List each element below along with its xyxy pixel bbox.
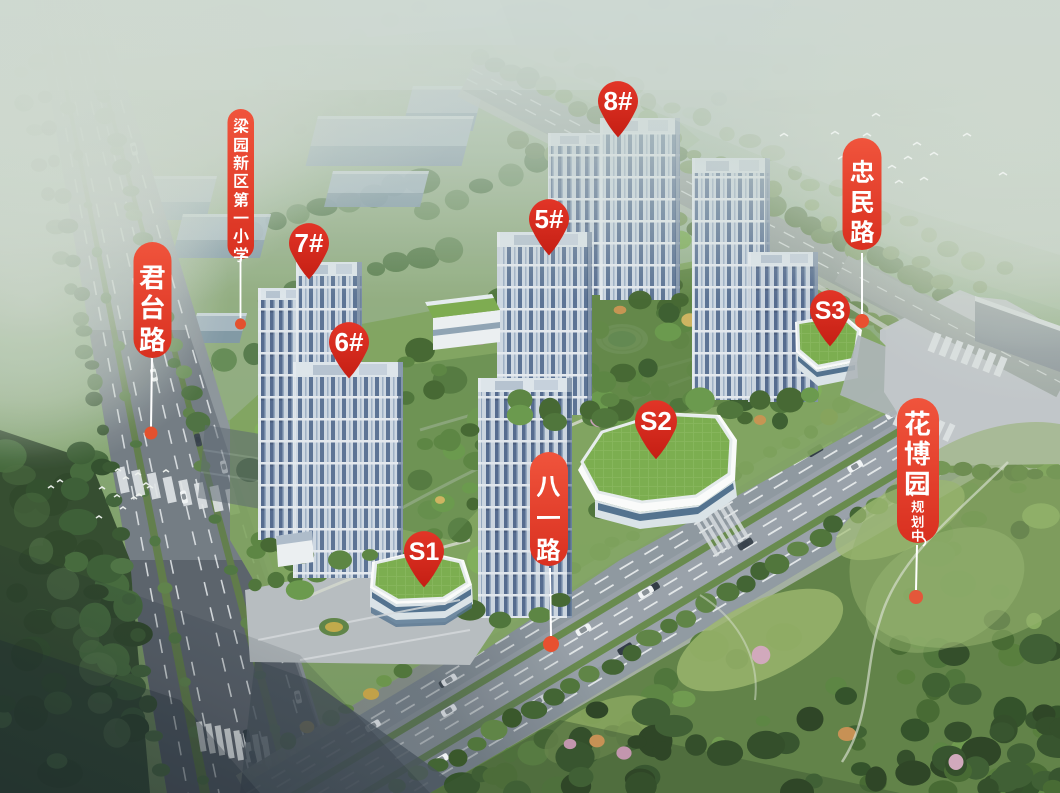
svg-text:S3: S3 xyxy=(815,297,846,325)
svg-text:S2: S2 xyxy=(640,406,672,436)
svg-text:8#: 8# xyxy=(604,86,633,116)
svg-text:7#: 7# xyxy=(295,228,324,258)
svg-text:5#: 5# xyxy=(535,204,564,234)
svg-text:6#: 6# xyxy=(335,327,364,357)
svg-text:S1: S1 xyxy=(409,538,440,566)
